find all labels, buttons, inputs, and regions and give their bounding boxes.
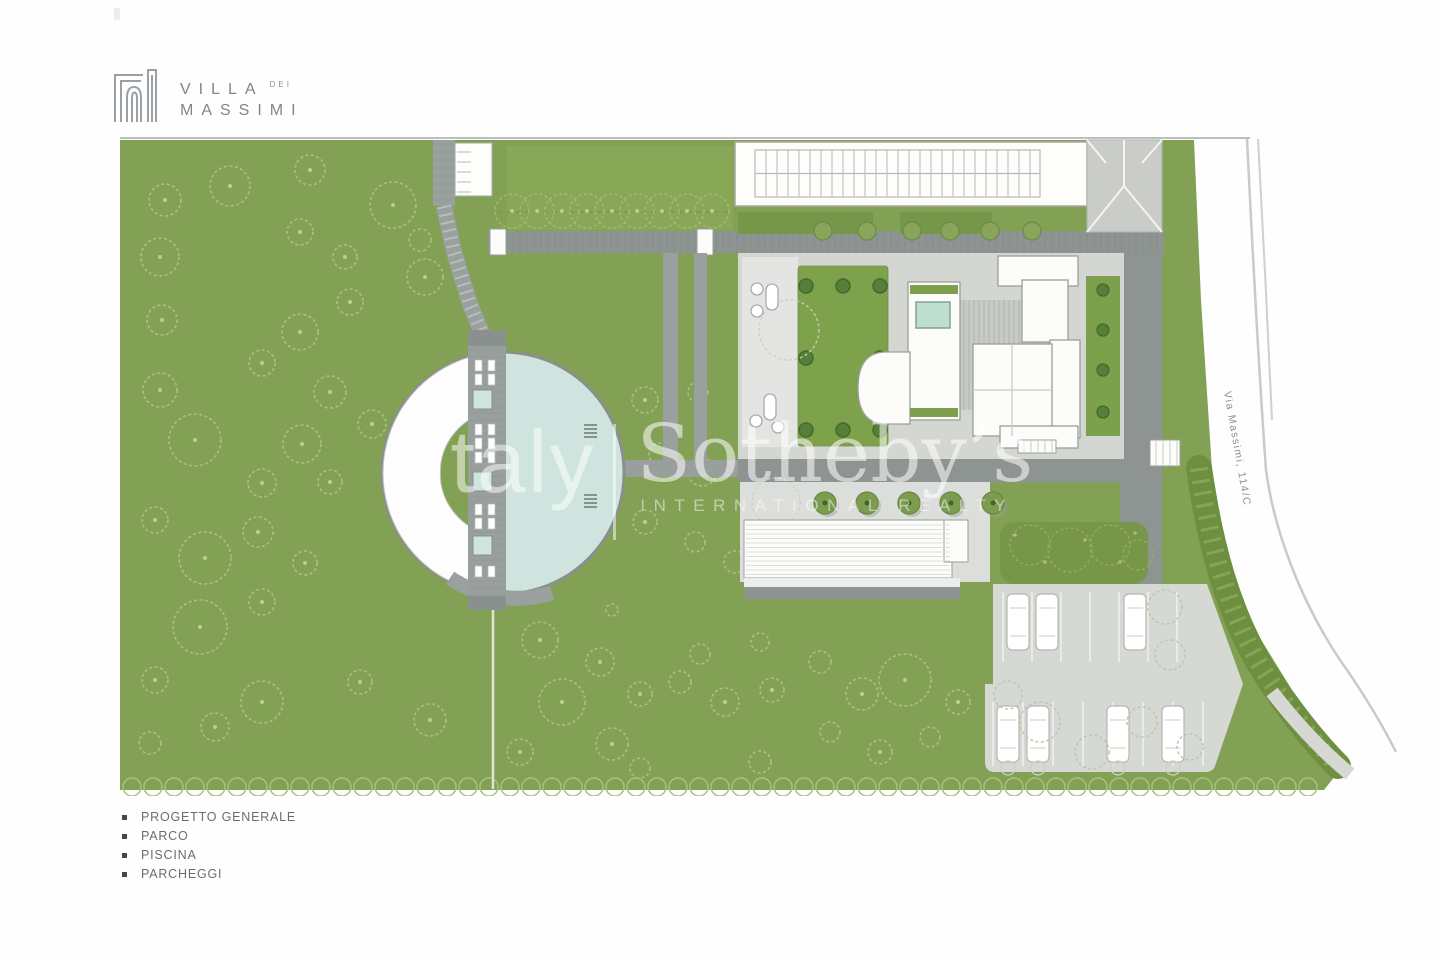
- legend-bullet-icon: [122, 815, 127, 820]
- pergola-walk-south: [738, 458, 1124, 482]
- south-terrace: [740, 478, 1007, 599]
- orangery-apron: [744, 578, 960, 587]
- legend-item: PROGETTO GENERALE: [122, 810, 296, 824]
- pool-house-planter-n: [910, 285, 958, 294]
- courtyard-pool: [916, 302, 950, 328]
- legend-label: PARCO: [141, 829, 189, 843]
- parking-hedge-block: [1000, 522, 1148, 584]
- south-walk: [744, 587, 960, 599]
- greenhouse-building: [735, 142, 1087, 240]
- gable-roof-building: [1087, 140, 1162, 232]
- legend: PROGETTO GENERALE PARCO PISCINA PARCHEGG…: [122, 810, 296, 886]
- legend-label: PARCHEGGI: [141, 867, 222, 881]
- car-outline: [1007, 594, 1029, 650]
- car-outline: [997, 706, 1019, 762]
- legend-bullet-icon: [122, 834, 127, 839]
- pool-villa-path: [626, 460, 744, 477]
- villa-west-path-2: [694, 253, 707, 471]
- orangery-building: [744, 520, 952, 578]
- hedge-strip-west: [738, 212, 873, 234]
- northeast-wing: [1022, 280, 1068, 342]
- legend-item: PISCINA: [122, 848, 296, 862]
- legend-item: PARCO: [122, 829, 296, 843]
- legend-bullet-icon: [122, 853, 127, 858]
- bow-front-hall: [858, 352, 910, 424]
- car-outline: [1036, 594, 1058, 650]
- garden-pavilion-pad: [455, 143, 492, 196]
- north-path: [433, 140, 455, 206]
- car-outline: [1027, 706, 1049, 762]
- orangery-step: [944, 520, 968, 562]
- site-plan-page: VILLADEI MASSIMI: [0, 0, 1440, 960]
- deck-north-stub: [468, 330, 506, 348]
- path-pad-west: [490, 229, 506, 255]
- car-outline: [1107, 706, 1129, 762]
- deck-south-stub: [468, 596, 506, 610]
- villa-west-path-1: [663, 253, 678, 471]
- east-wing: [1050, 340, 1080, 438]
- pool-house-planter-s: [910, 408, 958, 417]
- legend-item: PARCHEGGI: [122, 867, 296, 881]
- legend-bullet-icon: [122, 872, 127, 877]
- car-outline: [1124, 594, 1146, 650]
- road-label: Via Massimi, 114/C: [1221, 390, 1253, 507]
- upper-lawn: [507, 146, 733, 230]
- car-outline: [1162, 706, 1184, 762]
- legend-label: PROGETTO GENERALE: [141, 810, 296, 824]
- legend-label: PISCINA: [141, 848, 197, 862]
- path-pad-mid: [697, 229, 713, 255]
